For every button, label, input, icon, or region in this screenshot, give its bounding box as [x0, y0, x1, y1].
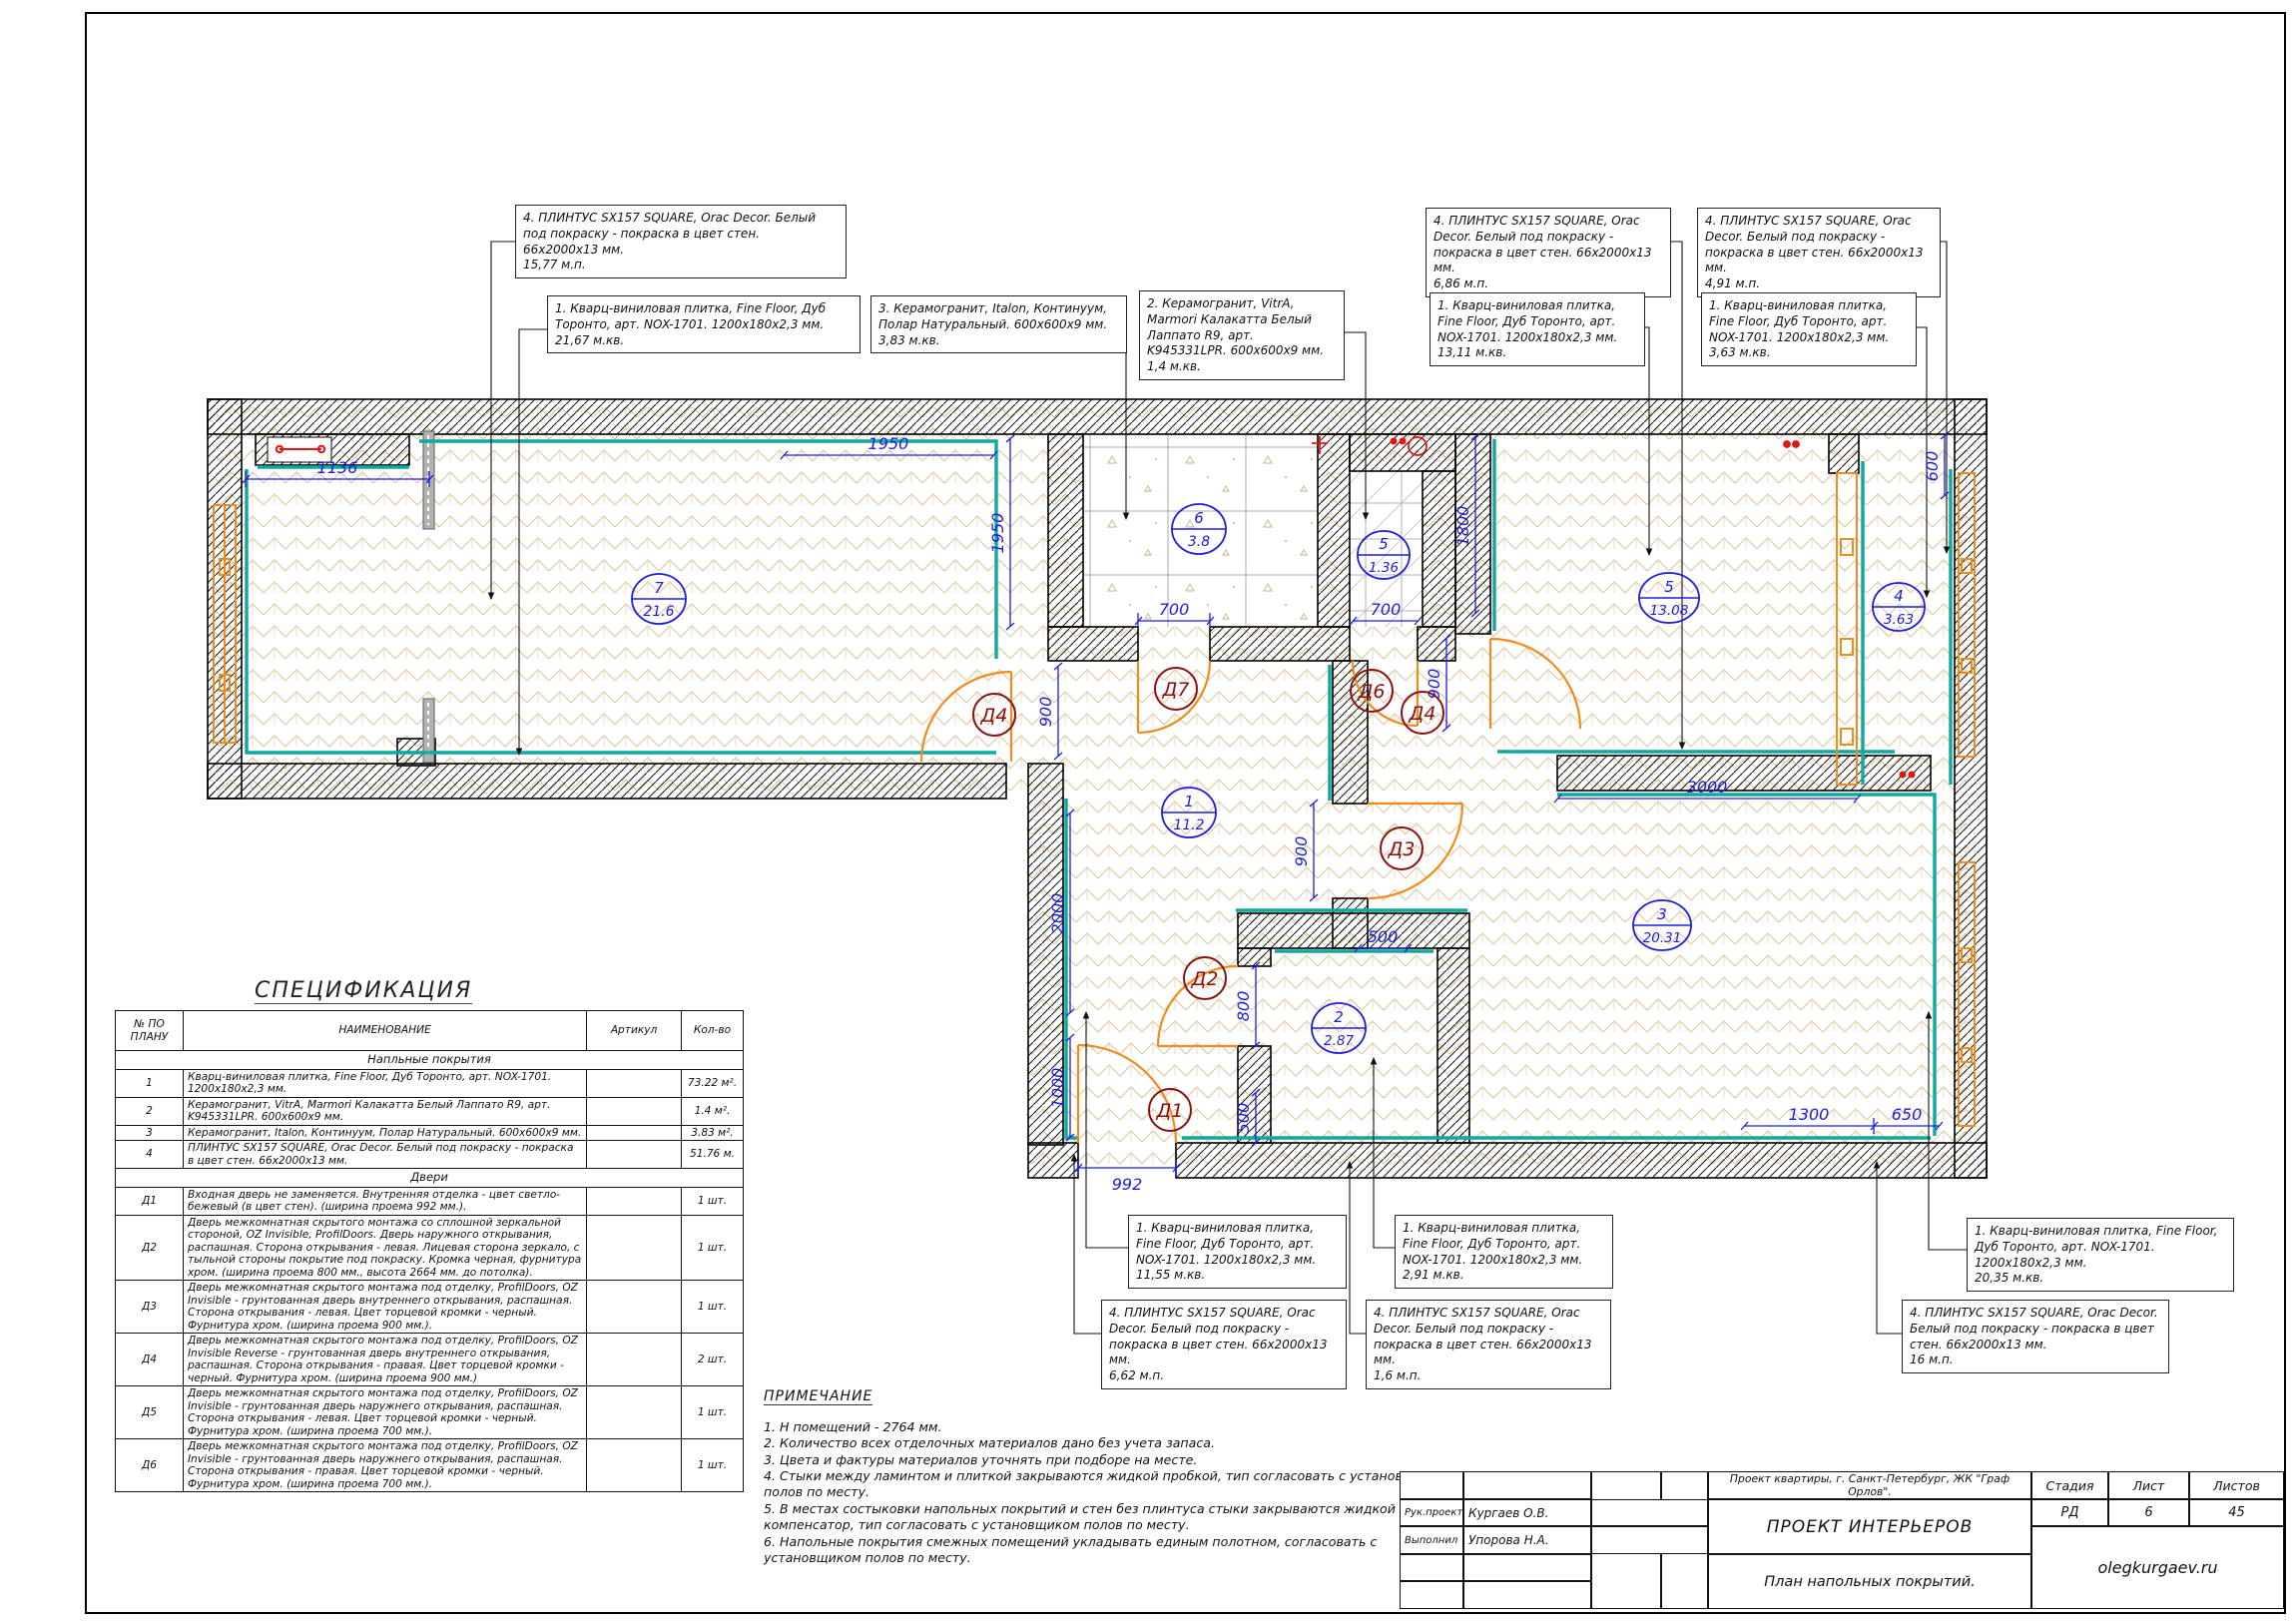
dim-650: 650: [1892, 1105, 1923, 1124]
callout-qty: 6,86 м.п.: [1434, 276, 1663, 292]
spec-row-name: Входная дверь не заменяется. Внутренняя …: [183, 1187, 586, 1215]
svg-text:20.31: 20.31: [1643, 930, 1682, 946]
dim-500-b: 500: [1234, 1103, 1253, 1134]
notes-title: ПРИМЕЧАНИЕ: [764, 1388, 872, 1405]
titleblock-site: olegkurgaev.ru: [2031, 1526, 2284, 1609]
callout-text: 1. Кварц-виниловая плитка, Fine Floor, Д…: [1709, 298, 1889, 344]
room-5-bedroom: 513.08: [1639, 573, 1699, 623]
drawing-sheet: 1136 1950 1950 700 700 1800 600 900 900 …: [0, 0, 2296, 1624]
titleblock-cell: [1463, 1471, 1591, 1499]
spec-row-art: [587, 1439, 682, 1492]
spec-row-no: Д6: [116, 1439, 184, 1492]
note-item: 1. Н помещений - 2764 мм.: [764, 1419, 1462, 1435]
spec-row-name: ПЛИНТУС SX157 SQUARE, Orac Decor. Белый …: [183, 1141, 586, 1169]
titleblock-role1: Рук.проекта: [1400, 1499, 1463, 1526]
spec-row-qty: 1 шт.: [682, 1439, 744, 1492]
callout-text: 4. ПЛИНТУС SX157 SQUARE, Orac Decor. Бел…: [1374, 1306, 1591, 1366]
room-1: 111.2: [1162, 788, 1216, 837]
titleblock-sheet-label: Лист: [2108, 1471, 2189, 1499]
svg-text:Д1: Д1: [1156, 1100, 1184, 1122]
callout-text: 4. ПЛИНТУС SX157 SQUARE, Orac Decor. Бел…: [1109, 1306, 1327, 1366]
spec-row-qty: 1 шт.: [682, 1386, 744, 1439]
callout-floor-room3: 1. Кварц-виниловая плитка, Fine Floor, Д…: [1967, 1218, 2234, 1292]
spec-row-no: Д1: [116, 1187, 184, 1215]
callout-qty: 13,11 м.кв.: [1437, 345, 1637, 361]
spec-row-qty: 1 шт.: [682, 1215, 744, 1281]
room-6: 63.8: [1172, 504, 1226, 554]
dim-1300: 1300: [1789, 1105, 1830, 1124]
table-row: 4ПЛИНТУС SX157 SQUARE, Orac Decor. Белый…: [116, 1141, 744, 1169]
spec-header-name: НАИМЕНОВАНИЕ: [183, 1011, 586, 1051]
svg-text:5: 5: [1664, 578, 1674, 596]
spec-row-name: Дверь межкомнатная скрытого монтажа со с…: [183, 1215, 586, 1281]
dim-3000: 3000: [1687, 778, 1728, 797]
callout-plinth-room3: 4. ПЛИНТУС SX157 SQUARE, Orac Decor. Бел…: [1902, 1300, 2169, 1373]
spec-row-art: [587, 1334, 682, 1386]
callout-text: 1. Кварц-виниловая плитка, Fine Floor, Д…: [1437, 298, 1617, 344]
table-row: 2Керамогранит, VitrA, Marmori Калакатта …: [116, 1097, 744, 1125]
table-row: Д5Дверь межкомнатная скрытого монтажа по…: [116, 1386, 744, 1439]
spec-row-qty: 1.4 м².: [682, 1097, 744, 1125]
spec-row-no: Д5: [116, 1386, 184, 1439]
spec-row-no: Д4: [116, 1334, 184, 1386]
callout-plinth-balcony: 4. ПЛИНТУС SX157 SQUARE, Orac Decor. Бел…: [1697, 208, 1941, 297]
titleblock-cell: [1591, 1526, 1708, 1554]
spec-row-name: Керамогранит, VitrA, Marmori Калакатта Б…: [183, 1097, 586, 1125]
svg-text:Д4: Д4: [1409, 703, 1436, 725]
specification-table: № ПО ПЛАНУ НАИМЕНОВАНИЕ Артикул Кол-во Н…: [115, 1010, 744, 1492]
spec-row-no: 2: [116, 1097, 184, 1125]
callout-qty: 20,35 м.кв.: [1975, 1271, 2226, 1287]
spec-row-name: Кварц-виниловая плитка, Fine Floor, Дуб …: [183, 1069, 586, 1097]
table-row: Д1Входная дверь не заменяется. Внутрення…: [116, 1187, 744, 1215]
spec-row-no: Д3: [116, 1281, 184, 1334]
dim-992: 992: [1112, 1175, 1143, 1194]
callout-plinth-livingroom: 4. ПЛИНТУС SX157 SQUARE, Orac Decor. Бел…: [515, 205, 847, 278]
titleblock-sub-title: План напольных покрытий.: [1708, 1554, 2031, 1609]
spec-section-doors: Двери: [116, 1169, 744, 1188]
svg-text:5: 5: [1379, 535, 1389, 553]
spec-header-art: Артикул: [587, 1011, 682, 1051]
callout-floor-balcony: 1. Кварц-виниловая плитка, Fine Floor, Д…: [1701, 292, 1917, 366]
callout-text: 3. Керамогранит, Italon, Континуум, Пола…: [878, 301, 1107, 331]
callout-text: 1. Кварц-виниловая плитка, Fine Floor, Д…: [1975, 1224, 2217, 1270]
spec-row-qty: 1 шт.: [682, 1281, 744, 1334]
room-2: 22.87: [1312, 1003, 1366, 1053]
spec-row-qty: 3.83 м².: [682, 1125, 744, 1141]
dim-1950-h: 1950: [868, 434, 909, 453]
spec-row-no: Д2: [116, 1215, 184, 1281]
titleblock-stage-value: РД: [2031, 1499, 2108, 1526]
dim-2000: 2000: [1048, 893, 1067, 934]
callout-plinth-hall: 4. ПЛИНТУС SX157 SQUARE, Orac Decor. Бел…: [1101, 1300, 1347, 1389]
titleblock-cell: [1400, 1471, 1463, 1499]
table-row: Д2Дверь межкомнатная скрытого монтажа со…: [116, 1215, 744, 1281]
svg-text:Д3: Д3: [1388, 838, 1416, 860]
svg-text:Д4: Д4: [980, 705, 1008, 727]
svg-text:Д7: Д7: [1162, 679, 1190, 701]
spec-row-qty: 2 шт.: [682, 1334, 744, 1386]
titleblock-role2: Выполнил: [1400, 1526, 1463, 1554]
spec-row-no: 4: [116, 1141, 184, 1169]
spec-row-art: [587, 1097, 682, 1125]
callout-text: 4. ПЛИНТУС SX157 SQUARE, Orac Decor. Бел…: [1705, 214, 1923, 274]
dim-800: 800: [1234, 991, 1253, 1022]
callout-qty: 11,55 м.кв.: [1136, 1268, 1339, 1284]
spec-row-art: [587, 1215, 682, 1281]
spec-header-qty: Кол-во: [682, 1011, 744, 1051]
dim-1000: 1000: [1048, 1068, 1067, 1109]
callout-floor-shower: 2. Керамогранит, VitrA, Marmori Калакатт…: [1139, 290, 1345, 380]
callout-qty: 3,63 м.кв.: [1709, 345, 1909, 361]
spec-row-qty: 73.22 м².: [682, 1069, 744, 1097]
callout-text: 2. Керамогранит, VitrA, Marmori Калакатт…: [1147, 296, 1324, 357]
spec-row-name: Дверь межкомнатная скрытого монтажа под …: [183, 1386, 586, 1439]
room-7: 721.6: [632, 574, 686, 624]
svg-text:Д2: Д2: [1191, 968, 1219, 990]
callout-text: 1. Кварц-виниловая плитка, Fine Floor, Д…: [1136, 1221, 1316, 1267]
svg-text:2: 2: [1334, 1008, 1344, 1026]
spec-row-art: [587, 1141, 682, 1169]
dim-500-a: 500: [1368, 927, 1399, 946]
callout-qty: 4,91 м.п.: [1705, 276, 1933, 292]
spec-title: СПЕЦИФИКАЦИЯ: [255, 978, 472, 1004]
svg-text:3.63: 3.63: [1884, 612, 1914, 628]
titleblock-cell: [1400, 1581, 1463, 1609]
spec-row-qty: 1 шт.: [682, 1187, 744, 1215]
svg-text:7: 7: [654, 579, 664, 597]
callout-text: 1. Кварц-виниловая плитка, Fine Floor, Д…: [555, 301, 826, 331]
callout-plinth-bedroom: 4. ПЛИНТУС SX157 SQUARE, Orac Decor. Бел…: [1426, 208, 1671, 297]
spec-row-art: [587, 1281, 682, 1334]
titleblock-name1: Кургаев О.В.: [1463, 1499, 1591, 1526]
spec-row-qty: 51.76 м.: [682, 1141, 744, 1169]
svg-text:11.2: 11.2: [1173, 817, 1204, 833]
titleblock-cell: [1463, 1581, 1591, 1609]
spec-row-name: Керамогранит, Italon, Континуум, Полар Н…: [183, 1125, 586, 1141]
titleblock-sheet-value: 6: [2108, 1499, 2189, 1526]
callout-text: 4. ПЛИНТУС SX157 SQUARE, Orac Decor. Бел…: [523, 211, 816, 257]
room-4: 43.63: [1873, 583, 1925, 631]
callout-text: 4. ПЛИНТУС SX157 SQUARE, Orac Decor. Бел…: [1434, 214, 1651, 274]
notes-block: ПРИМЕЧАНИЕ 1. Н помещений - 2764 мм. 2. …: [764, 1385, 1462, 1566]
titleblock-main-title: ПРОЕКТ ИНТЕРЬЕРОВ: [1708, 1499, 2031, 1554]
spec-row-art: [587, 1069, 682, 1097]
titleblock-sheets-label: Листов: [2189, 1471, 2284, 1499]
svg-text:6: 6: [1194, 509, 1204, 527]
dim-1950-v: 1950: [988, 513, 1007, 554]
titleblock-cell: [1591, 1499, 1708, 1526]
titleblock-sheets-value: 45: [2189, 1499, 2284, 1526]
callout-text: 1. Кварц-виниловая плитка, Fine Floor, Д…: [1403, 1221, 1582, 1267]
table-row: 1Кварц-виниловая плитка, Fine Floor, Дуб…: [116, 1069, 744, 1097]
callout-qty: 21,67 м.кв.: [555, 333, 853, 349]
table-row: Д6Дверь межкомнатная скрытого монтажа по…: [116, 1439, 744, 1492]
dim-900-c: 900: [1292, 836, 1311, 867]
table-row: Д4Дверь межкомнатная скрытого монтажа по…: [116, 1334, 744, 1386]
dim-1136: 1136: [317, 458, 358, 477]
titleblock-cell: [1463, 1554, 1591, 1581]
floor-bathroom-tile: [1083, 434, 1318, 627]
callout-qty: 16 м.п.: [1910, 1353, 2161, 1368]
table-row: 3Керамогранит, Italon, Континуум, Полар …: [116, 1125, 744, 1141]
svg-text:1.36: 1.36: [1369, 560, 1399, 576]
callout-qty: 2,91 м.кв.: [1403, 1268, 1605, 1284]
callout-floor-bedroom: 1. Кварц-виниловая плитка, Fine Floor, Д…: [1430, 292, 1645, 366]
callout-floor-bathroom: 3. Керамогранит, Italon, Континуум, Пола…: [870, 295, 1127, 353]
titleblock-project: Проект квартиры, г. Санкт-Петербург, ЖК …: [1708, 1471, 2031, 1499]
spec-row-art: [587, 1187, 682, 1215]
callout-floor-livingroom: 1. Кварц-виниловая плитка, Fine Floor, Д…: [547, 295, 861, 353]
callout-qty: 6,62 м.п.: [1109, 1368, 1339, 1384]
spec-row-no: 1: [116, 1069, 184, 1097]
table-row: Д3Дверь межкомнатная скрытого монтажа по…: [116, 1281, 744, 1334]
note-item: 4. Стыки между ламинтом и плиткой закрыв…: [764, 1468, 1462, 1501]
callout-qty: 1,6 м.п.: [1374, 1368, 1603, 1384]
dim-900-a: 900: [1036, 697, 1055, 728]
dim-700-b: 700: [1371, 600, 1402, 619]
callout-plinth-wc: 4. ПЛИНТУС SX157 SQUARE, Orac Decor. Бел…: [1366, 1300, 1611, 1389]
svg-text:3.8: 3.8: [1188, 534, 1210, 550]
dim-700-a: 700: [1159, 600, 1190, 619]
dim-600: 600: [1923, 451, 1942, 482]
dim-1800: 1800: [1453, 506, 1472, 547]
spec-row-no: 3: [116, 1125, 184, 1141]
spec-header-no: № ПО ПЛАНУ: [116, 1011, 184, 1051]
note-item: 6. Напольные покрытия смежных помещений …: [764, 1534, 1462, 1567]
spec-section-floors: Напльные покрытия: [116, 1051, 744, 1070]
callout-floor-wc: 1. Кварц-виниловая плитка, Fine Floor, Д…: [1395, 1215, 1613, 1289]
svg-text:2.87: 2.87: [1324, 1033, 1354, 1049]
svg-text:Д6: Д6: [1358, 681, 1386, 703]
spec-row-art: [587, 1125, 682, 1141]
note-item: 2. Количество всех отделочных материалов…: [764, 1435, 1462, 1451]
room-3: 320.31: [1633, 900, 1691, 950]
callout-qty: 15,77 м.п.: [523, 258, 839, 273]
spec-row-name: Дверь межкомнатная скрытого монтажа под …: [183, 1281, 586, 1334]
titleblock-name2: Упорова Н.А.: [1463, 1526, 1591, 1554]
callout-qty: 3,83 м.кв.: [878, 333, 1119, 349]
svg-text:3: 3: [1657, 905, 1667, 923]
svg-text:21.6: 21.6: [643, 604, 674, 620]
note-item: 5. В местах состыковки напольных покрыти…: [764, 1501, 1462, 1534]
callout-floor-hall: 1. Кварц-виниловая плитка, Fine Floor, Д…: [1128, 1215, 1347, 1289]
spec-row-art: [587, 1386, 682, 1439]
callout-text: 4. ПЛИНТУС SX157 SQUARE, Orac Decor. Бел…: [1910, 1306, 2158, 1352]
titleblock-cell: [1400, 1554, 1463, 1581]
svg-text:13.08: 13.08: [1650, 603, 1689, 619]
titleblock-stage-label: Стадия: [2031, 1471, 2108, 1499]
svg-text:1: 1: [1184, 793, 1194, 811]
spec-row-name: Дверь межкомнатная скрытого монтажа под …: [183, 1334, 586, 1386]
spec-row-name: Дверь межкомнатная скрытого монтажа под …: [183, 1439, 586, 1492]
room-5-shower: 51.36: [1358, 531, 1410, 579]
note-item: 3. Цвета и фактуры материалов уточнять п…: [764, 1452, 1462, 1468]
svg-text:4: 4: [1894, 587, 1904, 605]
callout-qty: 1,4 м.кв.: [1147, 359, 1337, 375]
